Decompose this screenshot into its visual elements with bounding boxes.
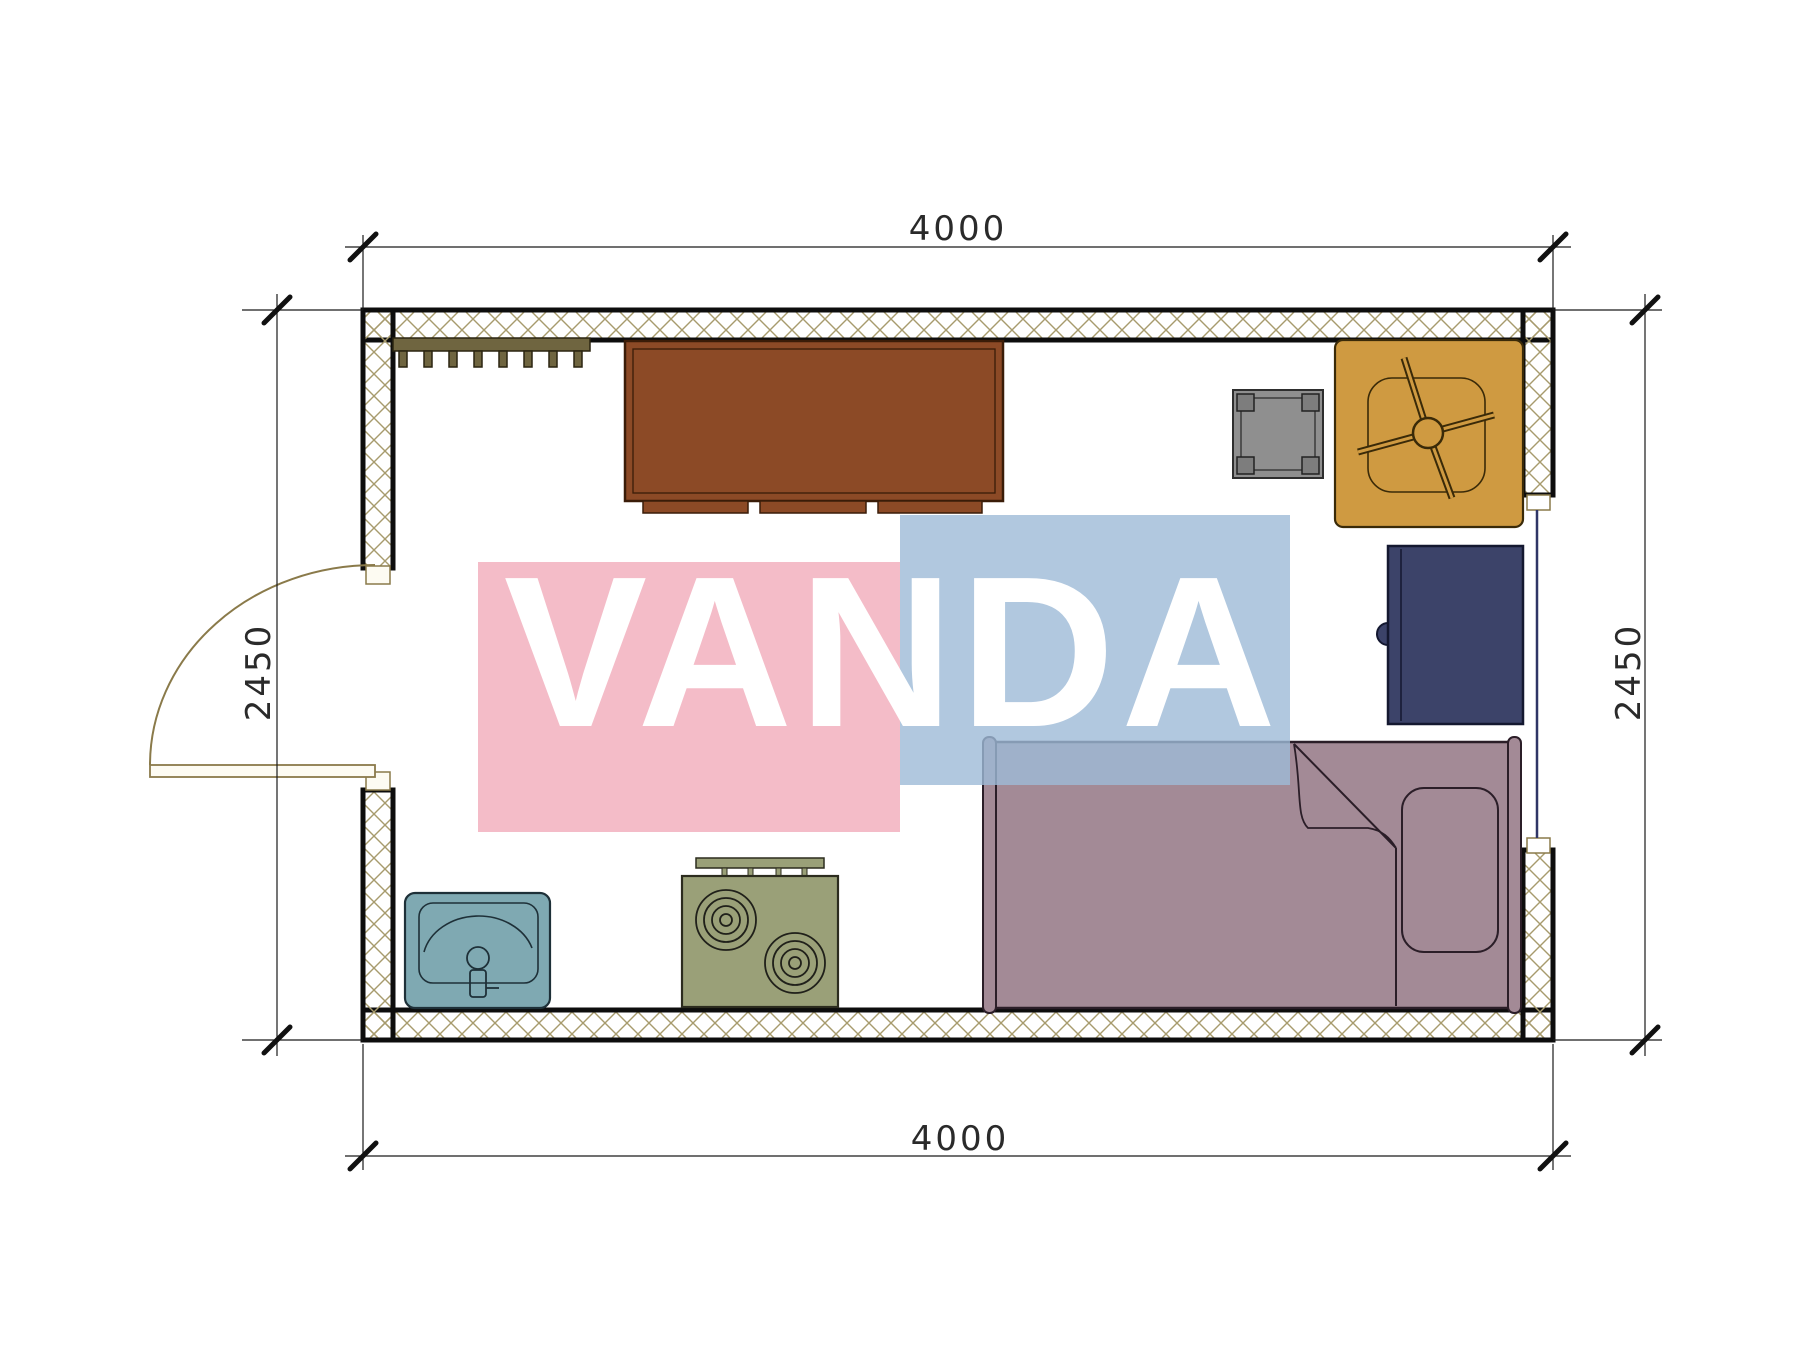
sink-icon bbox=[405, 893, 550, 1008]
desk-drawer bbox=[760, 501, 866, 513]
sink-counter bbox=[405, 893, 550, 1008]
dimension-left: 2450 bbox=[239, 294, 363, 1056]
window-frame-bottom bbox=[1527, 838, 1550, 853]
coat-hook bbox=[399, 351, 407, 367]
stool-leg bbox=[1302, 394, 1319, 411]
wall-bottom bbox=[363, 1010, 1553, 1040]
cabinet-icon bbox=[1377, 546, 1523, 724]
dimension-label-top: 4000 bbox=[909, 209, 1008, 249]
stool-leg bbox=[1302, 457, 1319, 474]
stove-back-rail bbox=[696, 858, 824, 868]
coat-hook bbox=[499, 351, 507, 367]
coat-hook bbox=[549, 351, 557, 367]
stool-leg bbox=[1237, 394, 1254, 411]
stove-icon bbox=[682, 858, 838, 1007]
desk-drawer bbox=[643, 501, 748, 513]
dimension-right: 2450 bbox=[1553, 294, 1662, 1056]
coat-hook bbox=[574, 351, 582, 367]
stool-leg bbox=[1237, 457, 1254, 474]
dimension-top: 4000 bbox=[345, 209, 1571, 310]
floor-plan-drawing: VANDA 4000 4000 2450 bbox=[0, 0, 1800, 1350]
bed-pillow bbox=[1402, 788, 1498, 952]
desk-drawer bbox=[878, 501, 982, 513]
wall-top bbox=[363, 310, 1553, 340]
coat-rack-bar bbox=[393, 338, 590, 351]
cabinet-body bbox=[1388, 546, 1523, 724]
office-chair-icon bbox=[1335, 340, 1523, 527]
wall-right-upper bbox=[1523, 310, 1553, 495]
coat-hook bbox=[524, 351, 532, 367]
watermark-text: VANDA bbox=[504, 531, 1283, 772]
stool-icon bbox=[1233, 390, 1323, 478]
floor-plan-canvas: VANDA 4000 4000 2450 bbox=[0, 0, 1800, 1350]
door-frame-top bbox=[366, 566, 390, 584]
desk-top bbox=[625, 341, 1003, 501]
wall-left-lower bbox=[363, 790, 393, 1040]
window bbox=[1527, 495, 1550, 853]
dimension-label-left: 2450 bbox=[239, 623, 279, 722]
dimension-bottom: 4000 bbox=[345, 1044, 1571, 1170]
coat-hook bbox=[424, 351, 432, 367]
coat-hook bbox=[449, 351, 457, 367]
bed-footboard bbox=[1508, 737, 1521, 1013]
chair-hub bbox=[1413, 418, 1443, 448]
wall-left-upper bbox=[363, 310, 393, 568]
coat-hook bbox=[474, 351, 482, 367]
coat-rack-icon bbox=[393, 338, 590, 367]
desk-icon bbox=[625, 341, 1003, 513]
dimension-label-right: 2450 bbox=[1609, 623, 1649, 722]
watermark: VANDA bbox=[478, 515, 1290, 832]
door-leaf bbox=[150, 765, 375, 777]
window-frame-top bbox=[1527, 495, 1550, 510]
wall-right-lower bbox=[1523, 850, 1553, 1040]
dimension-label-bottom: 4000 bbox=[911, 1119, 1010, 1159]
